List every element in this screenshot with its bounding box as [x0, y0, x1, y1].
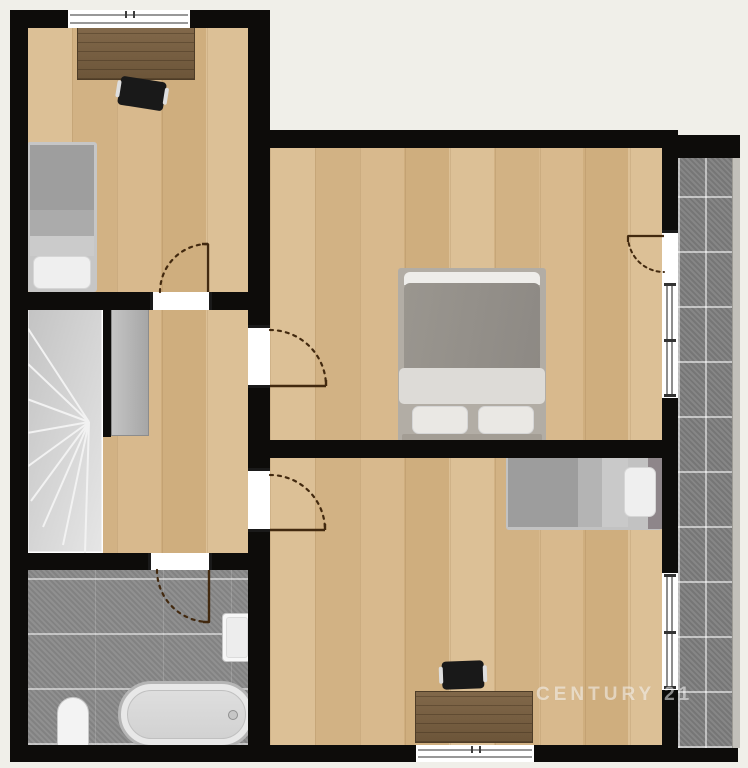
window-mullion — [125, 11, 135, 18]
window-bedroom1-top — [68, 10, 190, 28]
window-mullion — [471, 746, 481, 753]
bed-duvet-fold — [30, 210, 94, 236]
wall-left — [10, 10, 28, 762]
bathtub-drain — [228, 710, 238, 720]
wall-master-bedroom2 — [248, 440, 678, 458]
window-sash-cap — [664, 283, 676, 286]
staircase-icon — [27, 307, 103, 553]
door-swing-bathroom — [150, 564, 214, 628]
balcony-floor — [678, 158, 732, 748]
wall-balcony-top — [662, 135, 740, 158]
double-bed-icon-master — [398, 268, 546, 447]
window-glass-line — [418, 756, 532, 758]
toilet-icon — [57, 697, 89, 747]
window-sash-cap — [664, 339, 676, 342]
wardrobe-icon — [111, 308, 149, 436]
bed-pillow — [33, 256, 91, 289]
window-bedroom2-bottom — [416, 745, 534, 762]
bed-duvet — [508, 456, 578, 527]
bed-duvet-fold — [578, 456, 602, 527]
single-bed-icon-bedroom2 — [506, 453, 662, 530]
balcony-railing — [732, 158, 740, 748]
wall-master-top — [248, 130, 678, 148]
window-sash-cap — [664, 394, 676, 397]
desk-icon-bedroom1 — [77, 27, 195, 80]
bed-duvet — [404, 283, 540, 371]
door-swing-master — [266, 324, 334, 392]
desk-icon-bedroom2 — [415, 691, 533, 743]
bed-sheet — [30, 236, 94, 256]
bed-pillow — [412, 406, 468, 434]
bed-blanket — [399, 368, 545, 404]
office-chair-icon-bedroom2 — [442, 660, 485, 689]
bathtub-icon — [118, 681, 255, 748]
door-swing-bedroom1 — [144, 236, 216, 296]
wall-balcony-bottom — [662, 748, 738, 762]
wall-bedroom1-hall — [10, 292, 270, 310]
bed-pillow — [624, 467, 656, 517]
wall-stair-stub — [103, 307, 111, 437]
washbasin-basin — [226, 617, 248, 658]
bed-duvet — [30, 145, 94, 210]
door-swing-balcony — [620, 228, 668, 280]
window-sash-cap — [664, 574, 676, 577]
watermark-century21: CENTURY 21 — [536, 684, 693, 706]
window-master-right — [662, 282, 678, 398]
floor-plan: CENTURY 21 — [0, 0, 748, 768]
window-glass-line — [70, 22, 188, 24]
window-bedroom2-right — [662, 573, 678, 690]
window-sash-cap — [664, 631, 676, 634]
bed-pillow — [478, 406, 534, 434]
door-swing-bedroom2 — [266, 470, 330, 534]
wall-hall-bathroom — [10, 553, 270, 570]
single-bed-icon-bedroom1 — [27, 142, 97, 292]
wall-bottom — [10, 745, 678, 762]
